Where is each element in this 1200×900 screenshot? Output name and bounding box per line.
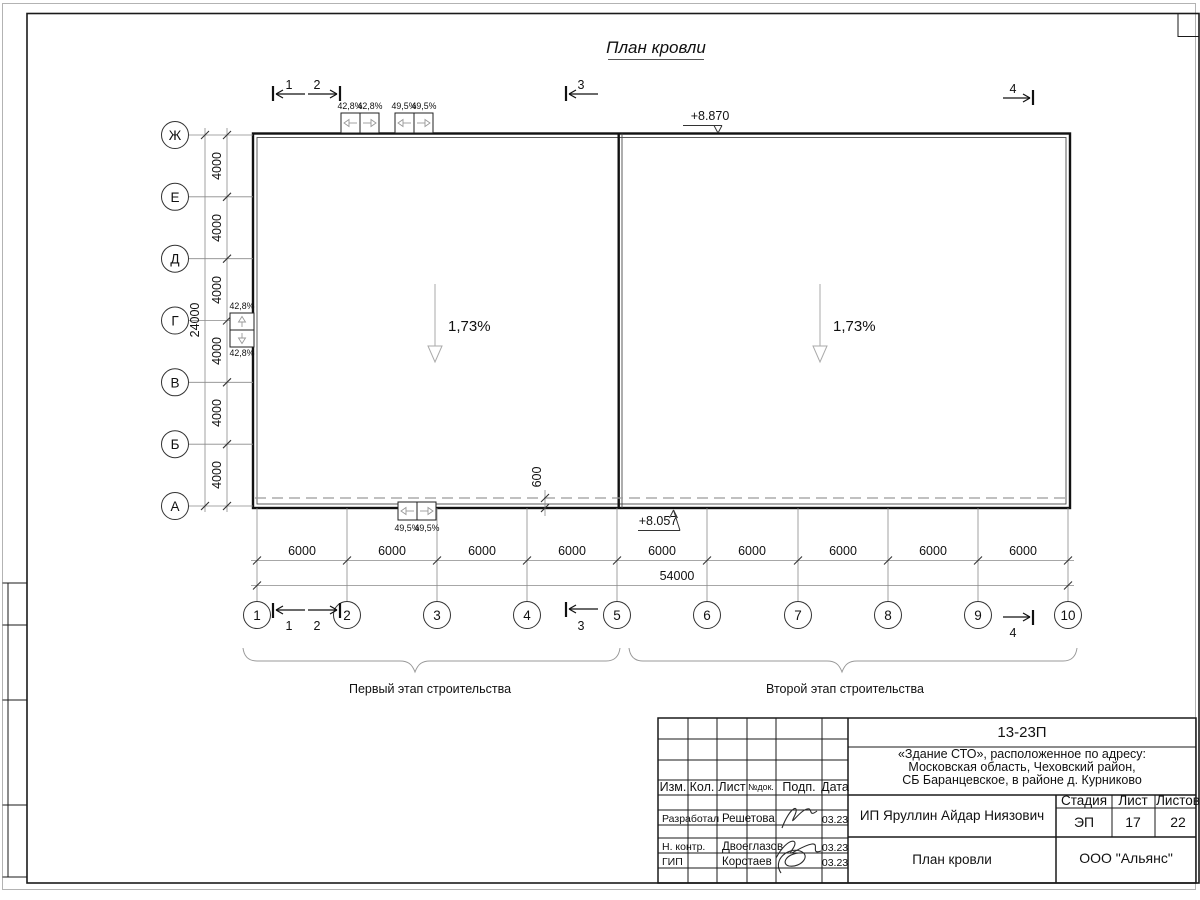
tb-name: Коротаев: [722, 856, 772, 868]
axis-label: 5: [613, 608, 621, 623]
elevation-top: +8.870: [683, 109, 729, 133]
axis-label: 10: [1060, 608, 1075, 623]
section-mark-label: 1: [286, 619, 293, 633]
section-mark-label: 1: [286, 78, 293, 92]
dim-4000: 4000: [210, 214, 224, 242]
axis-label: 9: [974, 608, 982, 623]
section-mark-label: 3: [578, 619, 585, 633]
elevation-bottom-value: +8.057: [639, 514, 678, 528]
tb-name: Двоеглазов: [722, 841, 783, 853]
left-dimension-lines: 4000 4000 4000 4000 4000 4000 24000: [188, 128, 231, 512]
dim-600: 600: [530, 467, 544, 488]
stage-right-label: Второй этап строительства: [766, 682, 924, 696]
dim-4000: 4000: [210, 276, 224, 304]
elevation-bottom: +8.057: [638, 510, 680, 531]
drain-slope-label: 49,5%: [415, 523, 440, 533]
tb-doc-number: 13-23П: [997, 724, 1046, 741]
dim-4000: 4000: [210, 461, 224, 489]
section-mark-label: 4: [1010, 626, 1017, 640]
tb-date: 03.23: [822, 842, 848, 854]
elevation-top-value: +8.870: [691, 109, 730, 123]
dim-6000: 6000: [919, 544, 947, 558]
axis-label: Г: [171, 314, 179, 329]
dim-4000: 4000: [210, 152, 224, 180]
tb-header-ndok: №док.: [748, 782, 774, 792]
stage-left-label: Первый этап строительства: [349, 682, 511, 696]
tb-date: 03.23: [822, 814, 848, 826]
section-marks-bottom: 1 2 3 4: [273, 602, 1033, 640]
axis-label: 2: [343, 608, 351, 623]
dim-6000: 6000: [468, 544, 496, 558]
tb-header-podp: Подп.: [782, 780, 815, 794]
dim-54000: 54000: [660, 569, 695, 583]
axis-label: Б: [171, 437, 180, 452]
left-axis-bubbles: Ж Е Д Г В Б А: [162, 122, 189, 520]
axis-label: В: [170, 375, 179, 390]
dim-6000: 6000: [558, 544, 586, 558]
axis-label: 7: [794, 608, 802, 623]
tb-project-line1: «Здание СТО», расположенное по адресу:: [898, 747, 1146, 761]
tb-project-line2: Московская область, Чеховский район,: [908, 760, 1135, 774]
tb-project-line3: СБ Баранцевское, в районе д. Курниково: [902, 773, 1142, 787]
axis-label: 3: [433, 608, 441, 623]
tb-role: Разработал: [662, 813, 719, 825]
drain-slope-label: 42,8%: [358, 101, 383, 111]
dim-6000: 6000: [738, 544, 766, 558]
dim-4000: 4000: [210, 399, 224, 427]
drawing-sheet: План кровли 1,73% 1,73% +8.870 +8.057: [0, 0, 1200, 900]
tb-stage-value: ЭП: [1074, 814, 1094, 830]
section-marks-top: 1 2 3 4: [273, 78, 1033, 105]
tb-name: Решетова: [722, 813, 775, 825]
section-mark-label: 4: [1010, 82, 1017, 96]
section-mark-label: 2: [314, 619, 321, 633]
tb-sheet-value: 17: [1125, 814, 1141, 830]
tb-header-list: Лист: [718, 780, 745, 794]
drain-slope-label: 42,8%: [230, 301, 255, 311]
dim-6000: 6000: [829, 544, 857, 558]
tb-role: ГИП: [662, 856, 683, 868]
building-outline: [253, 134, 1070, 509]
axis-label: Д: [170, 252, 179, 267]
dim-6000: 6000: [648, 544, 676, 558]
slope-label-left: 1,73%: [448, 318, 491, 335]
page-title: План кровли: [606, 38, 706, 57]
tb-role: Н. контр.: [662, 841, 705, 853]
tb-header-izm: Изм.: [660, 780, 687, 794]
slope-arrow-left: 1,73%: [428, 284, 491, 362]
roof-drains-bottom: 49,5% 49,5%: [395, 502, 440, 533]
axis-label: А: [170, 499, 179, 514]
left-margin-cells: [3, 583, 28, 877]
axis-label: 4: [523, 608, 531, 623]
title-block: Изм. Кол. Лист №док. Подп. Дата Разработ…: [658, 718, 1200, 883]
tb-drawing-name: План кровли: [912, 852, 992, 867]
tb-stage-label: Стадия: [1061, 793, 1107, 808]
tb-sheet-label: Лист: [1118, 793, 1147, 808]
roof-drains-left: 42,8% 42,8%: [230, 301, 255, 358]
axis-label: 8: [884, 608, 892, 623]
roof-drains-top: 42,8% 42,8% 49,5% 49,5%: [338, 101, 437, 133]
tb-client: ИП Яруллин Айдар Ниязович: [860, 808, 1044, 823]
axis-label: Е: [170, 190, 179, 205]
tb-header-data: Дата: [821, 780, 849, 794]
drawing-title: План кровли: [606, 38, 706, 60]
dim-6000: 6000: [288, 544, 316, 558]
tb-header-kol: Кол.: [690, 780, 715, 794]
bottom-dimension-lines: 6000 6000 6000 6000 6000 6000 6000 6000 …: [251, 544, 1074, 590]
tb-date: 03.23: [822, 857, 848, 869]
drain-slope-label: 42,8%: [230, 348, 255, 358]
dim-24000: 24000: [188, 303, 202, 338]
roof-outline: [253, 134, 1070, 509]
dim-6000: 6000: [1009, 544, 1037, 558]
dim-4000: 4000: [210, 337, 224, 365]
tb-sheets-value: 22: [1170, 814, 1186, 830]
axis-label: 6: [703, 608, 711, 623]
slope-label-right: 1,73%: [833, 318, 876, 335]
bottom-axis-bubbles: 1 2 3 4 5 6 7 8 9 10: [244, 602, 1082, 629]
axis-label: 1: [253, 608, 261, 623]
section-mark-label: 3: [578, 78, 585, 92]
section-mark-label: 2: [314, 78, 321, 92]
tb-company: ООО "Альянс": [1079, 850, 1173, 866]
dim-6000: 6000: [378, 544, 406, 558]
drain-slope-label: 49,5%: [412, 101, 437, 111]
stage-braces: Первый этап строительства Второй этап ст…: [243, 648, 1077, 696]
axis-label: Ж: [169, 128, 182, 143]
tb-sheets-label: Листов: [1156, 793, 1200, 808]
slope-arrow-right: 1,73%: [813, 284, 876, 362]
